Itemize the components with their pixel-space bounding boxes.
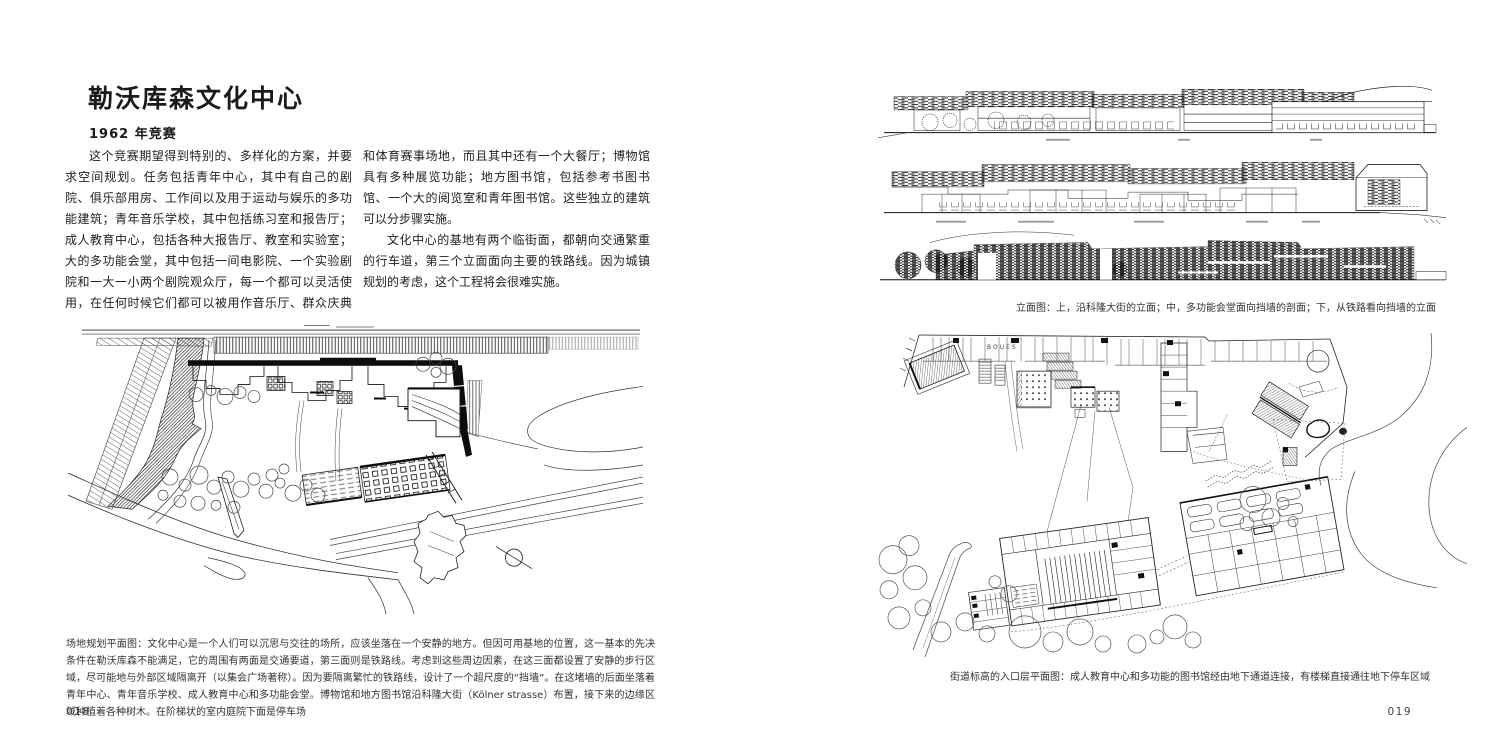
plan-room-label: BOUES <box>987 344 1018 351</box>
elevation-street-drawing <box>878 79 1448 145</box>
elevation-railway-wall-drawing <box>878 226 1448 288</box>
site-plan-drawing <box>68 324 643 614</box>
entry-level-plan-drawing: BOUES <box>875 331 1467 657</box>
body-paragraph-2: 文化中心的基地有两个临街面，都朝向交通繁重的行车道，第三个立面面向主要的铁路线。… <box>363 230 650 293</box>
competition-year: 1962 年竞赛 <box>89 123 177 142</box>
elevation-section-wall-drawing <box>878 147 1448 229</box>
page-number-left: 018 <box>66 706 91 718</box>
book-spread: 勒沃库森文化中心 1962 年竞赛 这个竞赛期望得到特别的、多样化的方案，并要求… <box>0 0 1500 750</box>
body-text: 这个竞赛期望得到特别的、多样化的方案，并要求空间规划。任务包括青年中心，其中有自… <box>65 146 650 316</box>
page-title: 勒沃库森文化中心 <box>88 79 304 115</box>
entry-plan-caption: 街道标高的入口层平面图：成人教育中心和多功能的图书馆经由地下通道连接，有楼梯直接… <box>730 669 1430 686</box>
page-number-right: 019 <box>1387 706 1412 718</box>
site-plan-caption: 场地规划平面图：文化中心是一个人们可以沉思与交往的场所，应该坐落在一个安静的地方… <box>66 636 655 721</box>
elevations-caption: 立面图：上，沿科隆大街的立面；中，多功能会堂面向挡墙的剖面；下，从铁路看向挡墙的… <box>836 300 1436 317</box>
